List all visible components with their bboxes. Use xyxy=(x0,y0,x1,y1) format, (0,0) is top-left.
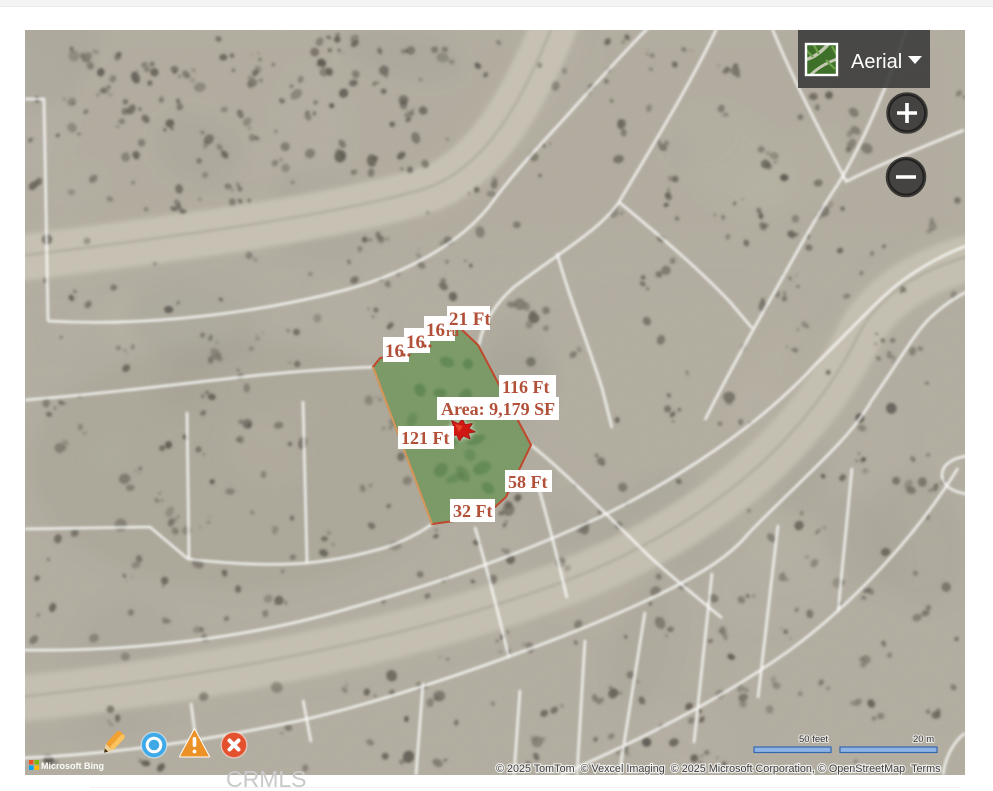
svg-text:Area: 9,179 SF: Area: 9,179 SF xyxy=(441,399,555,419)
svg-text:50 feet: 50 feet xyxy=(799,734,828,745)
svg-text:© 2025 TomTom © Vexcel Imagin: © 2025 TomTom © Vexcel Imaging © 2025 Mi… xyxy=(496,763,941,775)
svg-text:32 Ft: 32 Ft xyxy=(453,501,493,521)
svg-text:Microsoft Bing: Microsoft Bing xyxy=(41,761,104,771)
svg-text:116 Ft: 116 Ft xyxy=(502,377,550,397)
svg-text:58 Ft: 58 Ft xyxy=(508,472,548,492)
svg-text:21 Ft: 21 Ft xyxy=(449,309,491,330)
svg-text:121 Ft: 121 Ft xyxy=(401,428,450,448)
svg-text:16: 16 xyxy=(385,341,404,362)
svg-text:16: 16 xyxy=(406,332,425,353)
svg-text:Aerial: Aerial xyxy=(851,51,902,73)
svg-text:16: 16 xyxy=(426,320,445,341)
svg-text:20 m: 20 m xyxy=(913,734,934,745)
